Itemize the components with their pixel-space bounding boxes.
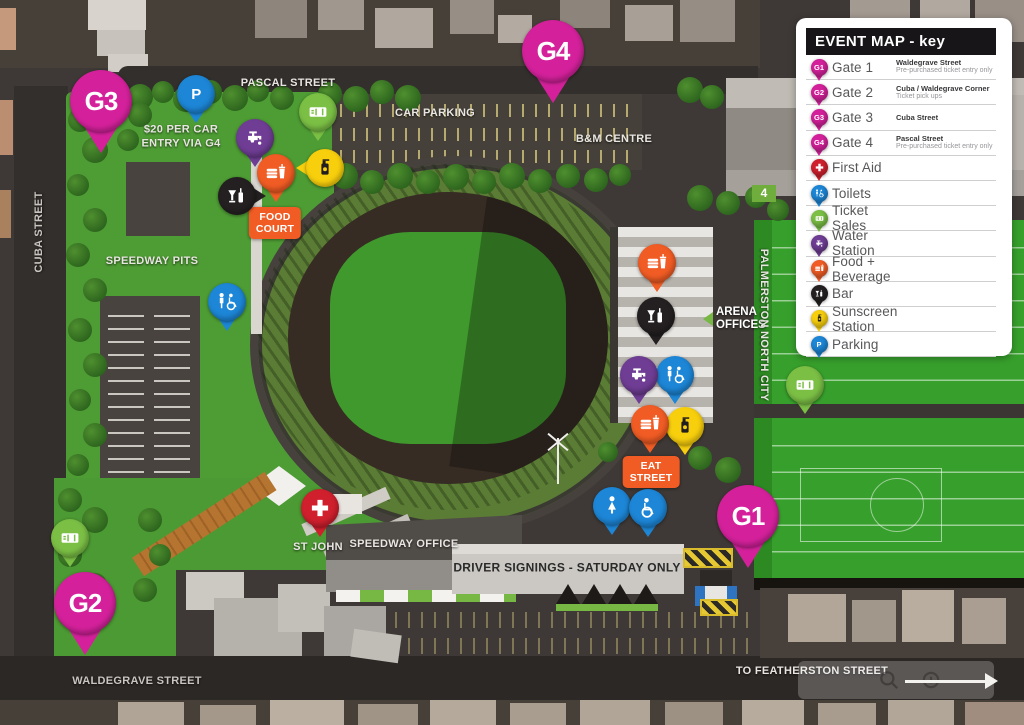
water-pin <box>620 356 658 394</box>
building <box>788 594 846 642</box>
building <box>255 0 307 38</box>
parking-stalls <box>108 305 144 473</box>
pin-badge-label: G4 <box>537 36 570 67</box>
legend-item-detail: Pascal StreetPre-purchased ticket entry … <box>896 134 993 151</box>
booth-base <box>700 599 738 616</box>
tree <box>58 488 82 512</box>
sunscreen-legend-icon <box>806 310 832 327</box>
gate-legend-icon: G3 <box>806 109 832 126</box>
tree <box>443 164 469 190</box>
arrow-left-icon <box>703 312 713 326</box>
bar-legend-icon <box>806 285 832 302</box>
pin-badge-label: G3 <box>85 86 118 117</box>
arena-offices-edge <box>610 227 618 423</box>
ticket-booth <box>705 586 727 599</box>
sunscreen-pin <box>811 310 828 327</box>
legend-item: G2Gate 2Cuba / Waldegrave CornerTicket p… <box>806 80 996 105</box>
building <box>902 590 954 642</box>
legend-item-label: Gate 2 <box>832 85 896 100</box>
entry-tent <box>700 570 732 586</box>
tree <box>556 164 580 188</box>
tickets-pin <box>786 366 824 404</box>
tree <box>416 170 440 194</box>
tent-base <box>556 604 658 611</box>
field-arc <box>870 478 924 532</box>
floodlight-pole <box>557 438 559 484</box>
tree <box>67 174 89 196</box>
building <box>888 700 954 725</box>
direction-arrowhead-icon <box>985 673 998 689</box>
building <box>965 702 1024 725</box>
water-pin <box>236 119 274 157</box>
bar-pin <box>811 285 828 302</box>
tree <box>677 77 703 103</box>
pits-parking-lot <box>126 162 190 236</box>
bar-pin <box>637 297 675 335</box>
food-legend-icon <box>806 260 832 277</box>
parking-legend-icon: P <box>806 336 832 353</box>
food-pin <box>631 405 669 443</box>
building <box>510 703 566 725</box>
tree <box>117 129 139 151</box>
tree <box>687 185 713 211</box>
tree <box>343 86 369 112</box>
tree <box>68 318 92 342</box>
sunscreen-pin <box>306 149 344 187</box>
building <box>318 0 364 30</box>
gate-pin: G1 <box>811 59 828 76</box>
legend-item-label: Gate 4 <box>832 135 896 150</box>
toilets-pin <box>656 356 694 394</box>
tree <box>83 353 107 377</box>
tree <box>715 457 741 483</box>
gate-pin: G2 <box>811 84 828 101</box>
tree <box>700 85 724 109</box>
map-label: PALMERSTON NORTH CITY <box>756 249 770 402</box>
legend-item: G1Gate 1Waldegrave StreetPre-purchased t… <box>806 55 996 80</box>
toilets-pin <box>811 185 828 202</box>
entry-ramp <box>683 548 733 568</box>
building <box>270 700 344 725</box>
building <box>962 598 1006 644</box>
legend-item-label: Gate 1 <box>832 60 896 75</box>
legend-item: Sunscreen Station <box>806 307 996 332</box>
magnifier-icon[interactable] <box>878 669 900 691</box>
building <box>0 8 16 50</box>
legend-item: G3Gate 3Cuba Street <box>806 105 996 130</box>
driver-signings-roof <box>452 544 684 554</box>
gate-pin: G2 <box>54 572 116 634</box>
building <box>852 600 896 642</box>
legend-item-label: Sunscreen Station <box>832 304 897 334</box>
pin-badge-label: G3 <box>814 113 824 122</box>
tree <box>370 80 394 104</box>
pin-badge-label: G2 <box>814 88 824 97</box>
toilets-pin <box>208 283 246 321</box>
pin-badge-label: P <box>816 340 821 349</box>
legend-item: Food + Beverage <box>806 257 996 282</box>
tickets-pin <box>299 93 337 131</box>
tree <box>149 544 171 566</box>
gate-pin: G3 <box>811 109 828 126</box>
tree <box>767 199 789 221</box>
bar-pin <box>218 177 256 215</box>
tree <box>67 454 89 476</box>
tree <box>360 170 384 194</box>
map-label: B&M CENTRE <box>576 133 652 147</box>
legend-item-detail: Waldegrave StreetPre-purchased ticket en… <box>896 58 993 75</box>
map-tag-label: EAT STREET <box>623 456 680 488</box>
map-tag-label: FOOD COURT <box>249 207 301 239</box>
tree <box>598 442 618 462</box>
building <box>97 30 145 56</box>
building <box>450 0 494 34</box>
building <box>625 5 673 41</box>
gate-legend-icon: G2 <box>806 84 832 101</box>
building <box>818 703 876 725</box>
tree <box>83 423 107 447</box>
tree <box>472 170 496 194</box>
tree <box>66 243 90 267</box>
map-label: WALDEGRAVE STREET <box>72 675 202 689</box>
map-label: DRIVER SIGNINGS - SATURDAY ONLY <box>453 561 680 576</box>
pin-badge-label: G4 <box>814 138 824 147</box>
pin-badge-label: G1 <box>732 501 765 532</box>
map-label: SPEEDWAY OFFICE <box>349 538 458 552</box>
tree <box>387 163 413 189</box>
tree <box>69 389 91 411</box>
tree <box>609 164 631 186</box>
food-pin <box>257 154 295 192</box>
building <box>278 584 330 632</box>
tree <box>584 168 608 192</box>
gate-legend-icon: G1 <box>806 59 832 76</box>
water-pin <box>811 235 828 252</box>
map-label: CAR PARKING <box>395 107 475 121</box>
legend-item-label: Food + Beverage <box>832 254 896 284</box>
tree <box>528 169 552 193</box>
tree <box>152 81 174 103</box>
parking-pin: P <box>177 75 215 113</box>
building <box>665 702 723 725</box>
tree <box>138 508 162 532</box>
parking-stalls <box>340 104 634 117</box>
map-label: CUBA STREET <box>33 191 47 272</box>
building <box>358 704 418 725</box>
firstaid-pin <box>301 489 339 527</box>
building <box>680 0 735 42</box>
map-label: ST JOHN <box>293 541 343 555</box>
parking-stalls <box>395 638 755 654</box>
tree <box>133 578 157 602</box>
direction-arrow <box>905 680 987 683</box>
event-map[interactable]: 4 ARENA OFFICES <box>0 0 1024 725</box>
building <box>200 705 256 725</box>
legend-item: G4Gate 4Pascal StreetPre-purchased ticke… <box>806 131 996 156</box>
food-pin <box>638 244 676 282</box>
legend-item-label: Bar <box>832 286 896 301</box>
map-label: SPEEDWAY PITS <box>106 255 199 269</box>
legend-items: G1Gate 1Waldegrave StreetPre-purchased t… <box>806 55 996 357</box>
firstaid-pin <box>811 159 828 176</box>
tree <box>716 191 740 215</box>
building <box>580 700 650 725</box>
map-label: PASCAL STREET <box>241 77 336 91</box>
pin-badge-label: G2 <box>69 588 102 619</box>
legend-item-detail: Cuba Street <box>896 113 938 122</box>
legend-item-label: First Aid <box>832 160 896 175</box>
arena-label-line1: ARENA <box>716 306 757 318</box>
toilet-accessible-pin <box>629 489 667 527</box>
sunscreen-pin <box>666 407 704 445</box>
tickets-legend-icon <box>806 210 832 227</box>
toilet-female-pin <box>593 487 631 525</box>
building <box>375 8 433 48</box>
tickets-pin <box>51 519 89 557</box>
gate-pin: G3 <box>70 70 132 132</box>
gate4-sign: 4 <box>752 185 776 202</box>
legend-panel: EVENT MAP - key G1Gate 1Waldegrave Stree… <box>796 18 1012 356</box>
legend-item-detail: Cuba / Waldegrave CornerTicket pick ups <box>896 84 990 101</box>
parking-pin: P <box>811 336 828 353</box>
legend-item-label: Parking <box>832 337 896 352</box>
building <box>742 700 804 725</box>
legend-item: PParking <box>806 332 996 357</box>
gate-legend-icon: G4 <box>806 134 832 151</box>
firstaid-legend-icon <box>806 159 832 176</box>
legend-item: First Aid <box>806 156 996 181</box>
building <box>0 100 13 155</box>
food-pin <box>811 260 828 277</box>
building <box>88 0 146 30</box>
map-label: $20 PER CAR ENTRY VIA G4 <box>142 123 221 151</box>
legend-item-label: Gate 3 <box>832 110 896 125</box>
gate-pin: G4 <box>811 134 828 151</box>
legend-title: EVENT MAP - key <box>806 28 996 55</box>
building <box>0 190 11 238</box>
building <box>430 700 496 725</box>
tree <box>83 278 107 302</box>
tree <box>83 208 107 232</box>
building <box>118 702 184 725</box>
pin-badge-label: G1 <box>814 63 824 72</box>
gate-pin: G1 <box>717 485 779 547</box>
tree <box>499 163 525 189</box>
gate-pin: G4 <box>522 20 584 82</box>
tickets-pin <box>811 210 828 227</box>
toilets-legend-icon <box>806 185 832 202</box>
water-legend-icon <box>806 235 832 252</box>
pin-badge-label: P <box>191 86 201 103</box>
legend-item-label: Toilets <box>832 186 896 201</box>
parking-stalls <box>154 305 190 473</box>
